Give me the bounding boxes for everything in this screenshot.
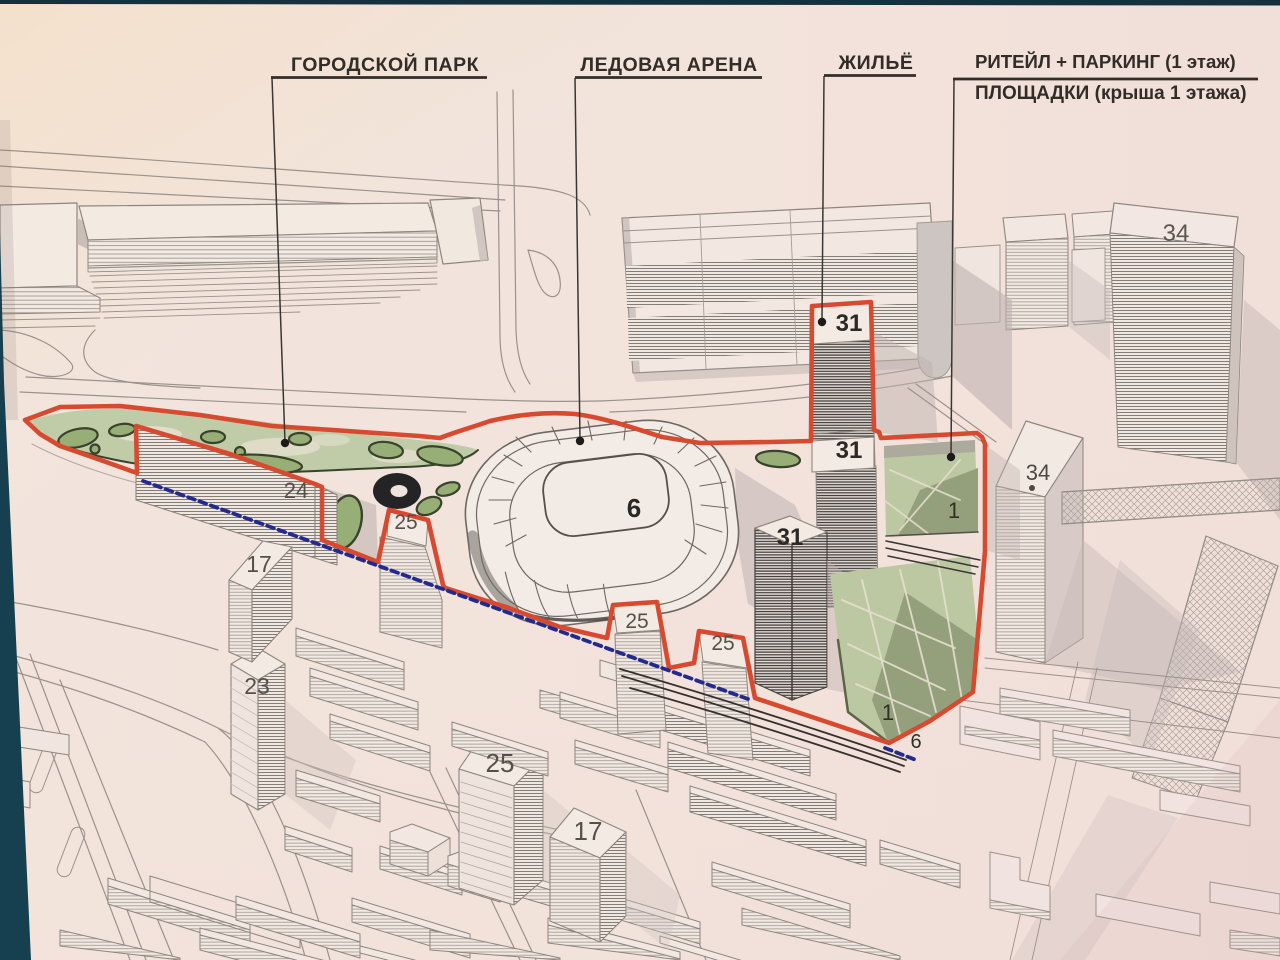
svg-text:25: 25: [394, 511, 417, 534]
svg-text:31: 31: [777, 524, 804, 551]
svg-text:25: 25: [486, 748, 515, 778]
svg-text:25: 25: [711, 632, 734, 655]
svg-text:6: 6: [910, 731, 921, 753]
svg-text:ГОРОДСКОЙ ПАРК: ГОРОДСКОЙ ПАРК: [291, 52, 479, 76]
svg-text:6: 6: [627, 493, 641, 523]
svg-text:ПЛОЩАДКИ (крыша 1 этажа): ПЛОЩАДКИ (крыша 1 этажа): [975, 83, 1247, 104]
svg-text:17: 17: [246, 551, 272, 577]
svg-text:РИТЕЙЛ + ПАРКИНГ (1 этаж): РИТЕЙЛ + ПАРКИНГ (1 этаж): [975, 51, 1236, 72]
svg-text:31: 31: [836, 437, 863, 464]
svg-text:17: 17: [574, 816, 603, 846]
svg-text:25: 25: [625, 610, 648, 633]
svg-text:34: 34: [1026, 460, 1050, 485]
svg-text:1: 1: [882, 700, 894, 725]
svg-text:ЖИЛЬЁ: ЖИЛЬЁ: [838, 51, 914, 74]
svg-text:ЛЕДОВАЯ АРЕНА: ЛЕДОВАЯ АРЕНА: [580, 54, 757, 76]
svg-text:34: 34: [1163, 220, 1190, 247]
svg-text:31: 31: [836, 310, 863, 337]
svg-text:24: 24: [284, 478, 308, 503]
svg-text:1: 1: [948, 498, 960, 523]
svg-text:23: 23: [244, 673, 270, 699]
